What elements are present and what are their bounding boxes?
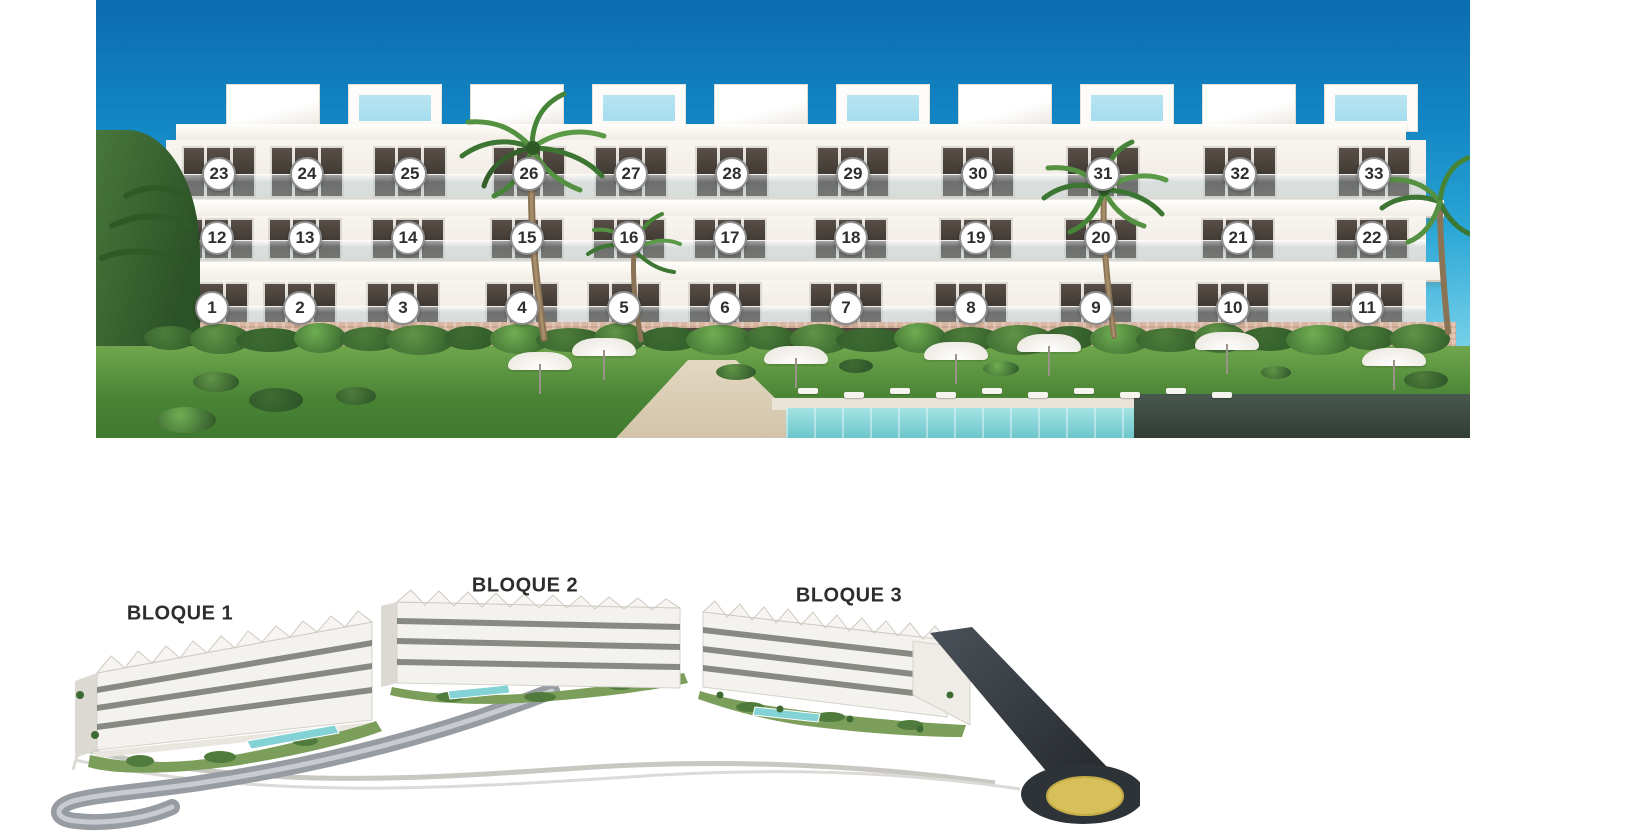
unit-marker-31: 31	[1086, 157, 1120, 191]
unit-marker-30: 30	[961, 157, 995, 191]
sun-lounger	[844, 392, 864, 398]
block-1-building	[75, 611, 382, 773]
unit-marker-10: 10	[1216, 291, 1250, 325]
unit-marker-17: 17	[713, 221, 747, 255]
umbrella	[764, 346, 828, 390]
unit-marker-24: 24	[290, 157, 324, 191]
unit-marker-23: 23	[202, 157, 236, 191]
sun-lounger	[1074, 388, 1094, 394]
unit-marker-29: 29	[836, 157, 870, 191]
first-floor-slab	[148, 262, 1444, 282]
facade-elevation-image: 2324252627282930313233121314151617181920…	[96, 0, 1470, 438]
unit-marker-11: 11	[1350, 291, 1384, 325]
roundabout-center	[1047, 777, 1123, 815]
unit-marker-18: 18	[834, 221, 868, 255]
umbrella	[1195, 332, 1259, 376]
block-3-label: BLOQUE 3	[796, 585, 902, 608]
unit-marker-33: 33	[1357, 157, 1391, 191]
bush	[144, 326, 196, 350]
sun-lounger	[1120, 392, 1140, 398]
unit-marker-15: 15	[510, 221, 544, 255]
umbrella	[508, 352, 572, 396]
umbrella	[1362, 348, 1426, 392]
bush	[294, 323, 346, 353]
unit-marker-5: 5	[607, 291, 641, 325]
bush	[336, 387, 376, 405]
unit-marker-14: 14	[391, 221, 425, 255]
sun-lounger	[1166, 388, 1186, 394]
sun-lounger	[982, 388, 1002, 394]
block-2-label: BLOQUE 2	[472, 575, 578, 598]
unit-marker-22: 22	[1355, 221, 1389, 255]
unit-marker-26: 26	[512, 157, 546, 191]
unit-marker-20: 20	[1084, 221, 1118, 255]
unit-marker-21: 21	[1221, 221, 1255, 255]
block-2-building	[381, 590, 688, 704]
umbrella	[1017, 334, 1081, 378]
bush	[716, 364, 756, 380]
sun-lounger	[936, 392, 956, 398]
unit-marker-2: 2	[283, 291, 317, 325]
bush	[839, 359, 873, 373]
bush	[1344, 326, 1396, 350]
unit-marker-16: 16	[612, 221, 646, 255]
bush	[156, 407, 216, 433]
unit-marker-19: 19	[959, 221, 993, 255]
unit-marker-27: 27	[614, 157, 648, 191]
sun-lounger	[1212, 392, 1232, 398]
unit-marker-9: 9	[1079, 291, 1113, 325]
bush	[193, 372, 239, 392]
unit-marker-7: 7	[829, 291, 863, 325]
unit-marker-13: 13	[288, 221, 322, 255]
unit-marker-25: 25	[393, 157, 427, 191]
unit-marker-32: 32	[1223, 157, 1257, 191]
site-plan-art	[20, 545, 1140, 835]
block-1-label: BLOQUE 1	[127, 603, 233, 626]
umbrella	[572, 338, 636, 382]
bush	[983, 361, 1019, 376]
unit-marker-1: 1	[195, 291, 229, 325]
bush	[444, 326, 496, 350]
site-plan-image: BLOQUE 1 BLOQUE 2 BLOQUE 3	[20, 545, 1140, 835]
bush	[249, 388, 303, 412]
bush	[1261, 366, 1291, 379]
dark-planter-box	[1134, 394, 1470, 438]
umbrella	[924, 342, 988, 386]
sun-lounger	[1028, 392, 1048, 398]
unit-marker-8: 8	[954, 291, 988, 325]
unit-marker-3: 3	[386, 291, 420, 325]
unit-marker-6: 6	[708, 291, 742, 325]
unit-marker-28: 28	[715, 157, 749, 191]
sun-lounger	[890, 388, 910, 394]
unit-marker-12: 12	[200, 221, 234, 255]
unit-marker-4: 4	[505, 291, 539, 325]
